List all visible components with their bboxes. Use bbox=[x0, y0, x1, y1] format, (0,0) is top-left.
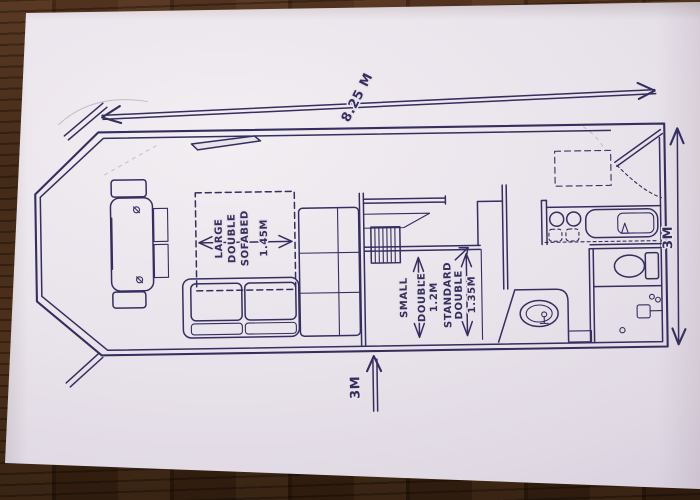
door-leaf bbox=[614, 130, 663, 167]
dimension-line bbox=[102, 90, 656, 120]
sofa-base-right bbox=[245, 322, 296, 334]
table-leg-marks bbox=[133, 207, 142, 283]
hob-burner-left bbox=[550, 212, 564, 226]
toilet-bowl bbox=[614, 255, 644, 277]
label-sofabed-w2: DOUBLE bbox=[227, 214, 239, 264]
bow-dinette bbox=[110, 179, 169, 308]
sofa-base-left bbox=[191, 323, 242, 335]
dinette-stool-right-bottom bbox=[154, 244, 169, 277]
label-standard-double-w2: DOUBLE bbox=[453, 270, 465, 320]
high-shelf bbox=[363, 196, 445, 205]
arrowhead-up bbox=[367, 356, 381, 371]
basin-inner bbox=[526, 305, 552, 322]
shower-control-1 bbox=[649, 294, 654, 299]
entrance-door bbox=[554, 130, 663, 200]
dimension-width-right: 3M bbox=[659, 128, 686, 344]
shower-drain bbox=[620, 328, 625, 333]
dinette-table bbox=[110, 198, 153, 292]
toilet-shower-divider bbox=[594, 286, 662, 287]
dinette-stool-right-top bbox=[153, 208, 168, 241]
label-width-right: 3M bbox=[661, 226, 676, 249]
hob-burner-right bbox=[567, 212, 581, 226]
bed-annotations: SMALL DOUBLE 1.2M STANDARD DOUBLE 1.35M bbox=[398, 247, 478, 337]
label-small-double-w2: DOUBLE bbox=[417, 273, 429, 323]
label-width-bottom: 3M bbox=[348, 376, 363, 399]
pencil-dashed-diagonal bbox=[101, 145, 156, 176]
counter-top-edge bbox=[547, 206, 661, 208]
door-swing-arc bbox=[617, 165, 662, 199]
kitchen bbox=[541, 199, 661, 245]
deck-corner bbox=[477, 201, 503, 245]
sofa bbox=[183, 277, 300, 338]
overhead-locker-dashed bbox=[555, 150, 612, 186]
dimension-line bbox=[373, 357, 378, 411]
oven-dashed-left bbox=[549, 229, 562, 241]
sofabed-area: LARGE DOUBLE SOFABED 1.45M bbox=[195, 191, 296, 291]
outer-wall bbox=[34, 124, 667, 357]
side-sofa-unit bbox=[298, 207, 360, 336]
dinette-seat-top bbox=[111, 180, 146, 198]
bathroom bbox=[589, 244, 663, 342]
label-sofabed-w3: SOFABED bbox=[240, 210, 252, 266]
shower-control-2 bbox=[656, 297, 661, 302]
bed-platform-edge bbox=[481, 249, 482, 339]
bow-corner-tick-top bbox=[64, 103, 108, 140]
label-length: 8.25 M bbox=[339, 71, 377, 125]
dimension-width-bottom: 3M bbox=[348, 356, 382, 412]
window bbox=[191, 136, 260, 150]
bathroom-threshold bbox=[568, 331, 591, 342]
dimension-length: 8.25 M bbox=[101, 66, 656, 129]
label-sofabed-size: 1.45M bbox=[259, 219, 271, 257]
counter-front-dashed bbox=[545, 241, 658, 243]
photo-of-floorplan: 8.25 M 3M 3M bbox=[0, 0, 700, 500]
bathroom-top-wall bbox=[590, 244, 661, 249]
bow-corner-tick-bottom bbox=[66, 353, 104, 387]
toilet-cistern bbox=[645, 253, 658, 279]
table-edge bbox=[112, 218, 113, 269]
label-sofabed-w1: LARGE bbox=[214, 219, 226, 259]
vanity bbox=[498, 289, 592, 343]
label-small-double-size: 1.2M bbox=[429, 282, 440, 312]
ladder-rungs bbox=[375, 228, 396, 262]
mid-wall-and-shelf bbox=[359, 185, 508, 345]
sink-tap-icon bbox=[621, 223, 630, 233]
sofa-cushion-left bbox=[191, 283, 243, 321]
oven-dashed-right bbox=[566, 229, 579, 241]
inner-wall bbox=[39, 130, 662, 352]
label-standard-double-size: 1.35M bbox=[467, 276, 479, 314]
label-small-double-w1: SMALL bbox=[399, 277, 411, 318]
dinette-seat-bottom bbox=[113, 292, 146, 309]
partition-wall bbox=[502, 185, 508, 289]
side-sofa-outline bbox=[298, 207, 360, 336]
narrowboat-floorplan-drawing: 8.25 M 3M 3M bbox=[0, 0, 700, 500]
bathroom-left-wall bbox=[589, 249, 594, 342]
shower-head-icon bbox=[637, 305, 650, 318]
sofa-cushion-right bbox=[245, 282, 297, 320]
side-sofa-dividers bbox=[300, 208, 360, 335]
dimension-line bbox=[675, 129, 680, 343]
